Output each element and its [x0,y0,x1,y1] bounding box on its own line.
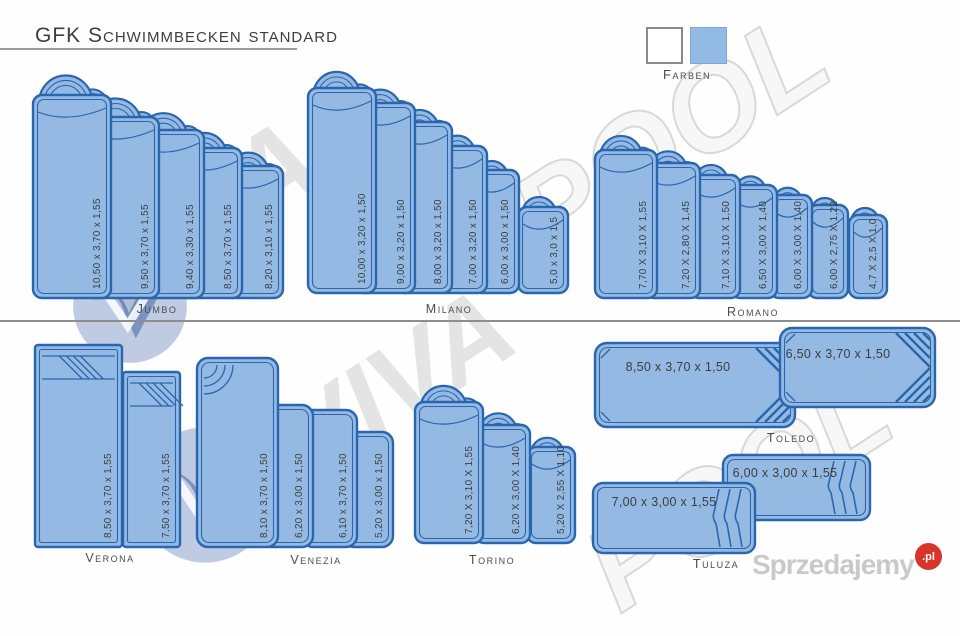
group-label-romano: Romano [727,305,779,319]
pool-toledo-1: 8,50 x 3,70 x 1,50 [595,343,795,427]
pool-romano-1: 7,70 X 3,10 X 1,55 [595,136,657,298]
pool-dimension-label: 7,00 x 3,20 x 1,50 [468,199,479,284]
pool-dimension-label: 8,10 x 3,70 x 1,50 [259,453,270,538]
pool-dimension-label: 7,20 X 2,80 X 1,45 [681,201,692,289]
pool-toledo-2: 6,50 x 3,70 x 1,50 [780,328,935,407]
pool-torino-1: 7,20 X 3,10 X 1,55 [415,386,483,543]
pool-milano-6: 5,0 x 3,0 x 1,5 [518,197,568,293]
pool-dimension-label: 6,00 X 2,75 X 1,22 [829,201,840,289]
pool-dimension-label: 9,00 x 3,20 x 1,50 [396,199,407,284]
pool-romano-7: 4,7 X 2,5 X 1,0 [849,208,887,298]
group-label-toledo: Toledo [767,431,815,445]
pool-dimension-label: 8,50 x 3,70 x 1,50 [626,360,731,374]
group-label-torino: Torino [469,553,515,567]
group-label-venezia: Venezia [290,553,341,567]
group-label-jumbo: Jumbo [137,302,178,316]
pool-dimension-label: 5,0 x 3,0 x 1,5 [549,217,560,284]
pool-dimension-label: 7,10 X 3,10 X 1,50 [721,201,732,289]
pool-outline [518,207,568,293]
pool-dimension-label: 7,70 X 3,10 X 1,55 [638,201,649,289]
group-label-tuluza: Tuluza [693,557,739,571]
pool-dimension-label: 5,20 x 3,00 x 1,50 [374,453,385,538]
pool-dimension-label: 6,50 x 3,70 x 1,50 [786,347,891,361]
pool-dimension-label: 7,00 x 3,00 x 1,55 [612,495,717,509]
pool-dimension-label: 10,00 x 3,20 x 1,50 [357,193,368,284]
group-label-verona: Verona [85,551,134,565]
pool-dimension-label: 9,40 x 3,30 x 1,55 [185,204,196,289]
pool-jumbo-1: 10,50 x 3,70 x 1,55 [33,75,111,298]
pool-dimension-label: 8,00 x 3,20 x 1,50 [433,199,444,284]
pool-dimension-label: 6,20 x 3,00 x 1,50 [294,453,305,538]
pool-romano-6: 6,00 X 2,75 X 1,22 [808,198,848,298]
pool-dimension-label: 8,20 x 3,10 x 1,55 [264,204,275,289]
pool-diagram-canvas: 8,20 x 3,10 x 1,558,50 x 3,70 x 1,559,40… [0,0,960,600]
pl-badge: .pl [915,543,942,570]
pool-venezia-1: 8,10 x 3,70 x 1,50 [197,358,278,547]
pool-dimension-label: 6,00 x 3,00 x 1,55 [733,466,838,480]
pool-dimension-label: 10,50 x 3,70 x 1,55 [92,198,103,289]
pool-dimension-label: 6,20 X 3,00 X 1,40 [511,446,522,534]
pool-verona-2: 7,50 x 3,70 x 1,55 [123,372,183,547]
pool-dimension-label: 8,50 x 3,70 x 1,55 [223,204,234,289]
pool-dimension-label: 6,00 X 3,00 X 1,40 [793,201,804,289]
pool-torino-3: 5,20 X 2,55 X 1,10 [527,438,575,543]
pool-dimension-label: 9,50 x 3,70 x 1,55 [140,204,151,289]
pool-dimension-label: 5,20 X 2,55 X 1,10 [556,446,567,534]
pool-dimension-label: 6,50 X 3,00 X 1,40 [758,201,769,289]
sprzedajemy-logo: Sprzedajemy [752,549,914,581]
group-label-milano: Milano [426,302,472,316]
pool-dimension-label: 7,50 x 3,70 x 1,55 [161,453,172,538]
pool-dimension-label: 6,10 x 3,70 x 1,50 [338,453,349,538]
pool-dimension-label: 6,00 x 3,00 x 1,50 [500,199,511,284]
pool-dimension-label: 7,20 X 3,10 X 1,55 [464,446,475,534]
pool-verona-1: 8,50 x 3,70 x 1,55 [35,345,122,547]
pool-tuluza-1: 7,00 x 3,00 x 1,55 [593,483,755,553]
pool-milano-1: 10,00 x 3,20 x 1,50 [308,72,376,293]
pool-dimension-label: 8,50 x 3,70 x 1,55 [103,453,114,538]
pool-dimension-label: 4,7 X 2,5 X 1,0 [868,218,879,289]
